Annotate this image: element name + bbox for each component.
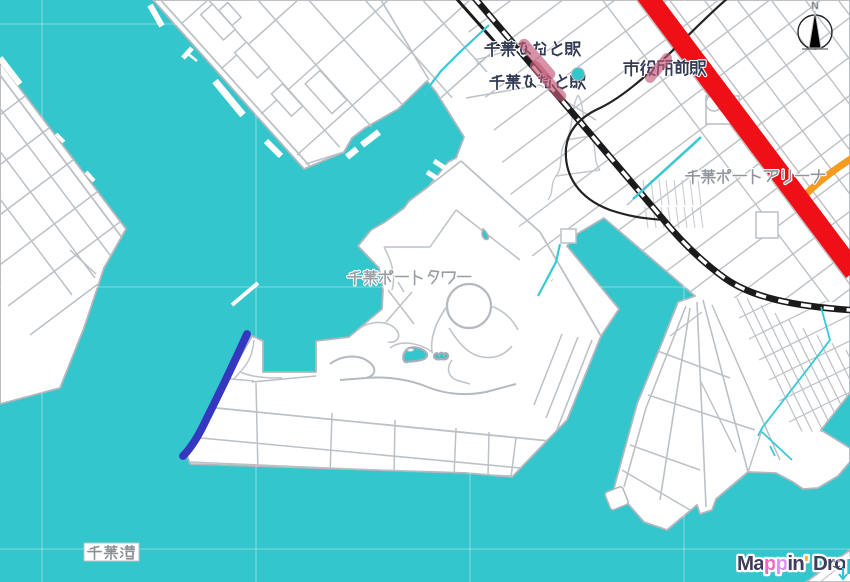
svg-text:Mappin' Drop: Mappin' Drop [737, 552, 850, 575]
svg-text:N: N [811, 1, 818, 12]
